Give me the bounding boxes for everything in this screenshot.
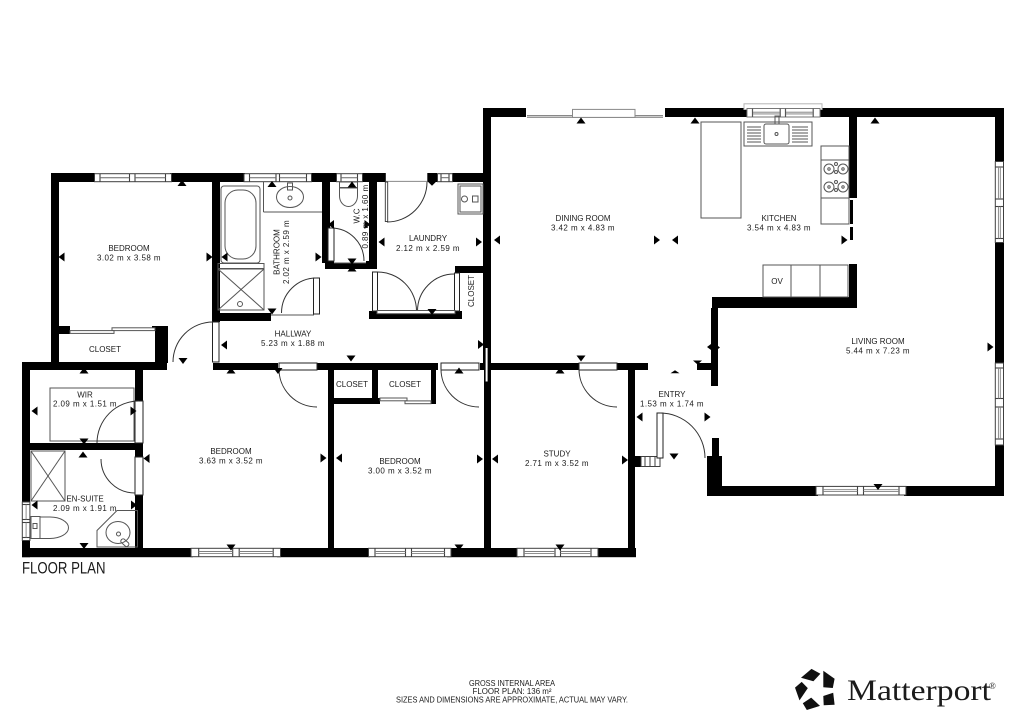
svg-text:LIVING ROOM: LIVING ROOM [851,337,905,346]
svg-text:2.71 m x 3.52 m: 2.71 m x 3.52 m [525,459,589,468]
svg-text:SIZES AND DIMENSIONS ARE APPRO: SIZES AND DIMENSIONS ARE APPROXIMATE, AC… [396,696,628,705]
svg-text:Matterport: Matterport [847,674,992,707]
svg-text:WIR: WIR [77,391,93,400]
svg-text:2.09 m x 1.51 m: 2.09 m x 1.51 m [53,400,117,409]
svg-text:EN-SUITE: EN-SUITE [66,495,103,504]
svg-text:BEDROOM: BEDROOM [108,244,150,253]
svg-text:HALLWAY: HALLWAY [275,330,312,339]
svg-text:ENTRY: ENTRY [659,390,687,399]
svg-text:BEDROOM: BEDROOM [210,447,252,456]
svg-text:2.12 m x 2.59 m: 2.12 m x 2.59 m [396,244,460,253]
svg-text:®: ® [989,681,996,691]
svg-text:CLOSET: CLOSET [336,380,368,389]
svg-text:3.42 m x 4.83 m: 3.42 m x 4.83 m [551,224,615,233]
svg-text:3.02 m x 3.58 m: 3.02 m x 3.58 m [97,254,161,263]
svg-text:LAUNDRY: LAUNDRY [409,234,448,243]
svg-text:OV: OV [771,277,783,286]
svg-text:CLOSET: CLOSET [467,275,476,307]
svg-text:BATHROOM: BATHROOM [273,229,282,275]
svg-text:3.63 m x 3.52 m: 3.63 m x 3.52 m [199,457,263,466]
svg-text:CLOSET: CLOSET [89,345,121,354]
svg-text:5.23 m x 1.88 m: 5.23 m x 1.88 m [261,339,325,348]
svg-text:3.54 m x 4.83 m: 3.54 m x 4.83 m [747,224,811,233]
svg-text:3.00 m x 3.52 m: 3.00 m x 3.52 m [368,467,432,476]
svg-text:1.53 m x 1.74 m: 1.53 m x 1.74 m [640,400,704,409]
svg-text:KITCHEN: KITCHEN [761,214,796,223]
svg-text:2.09 m x 1.91 m: 2.09 m x 1.91 m [53,504,117,513]
svg-text:DINING ROOM: DINING ROOM [555,214,610,223]
svg-text:0.89 m x 1.60 m: 0.89 m x 1.60 m [361,184,370,248]
svg-text:CLOSET: CLOSET [389,380,421,389]
svg-text:BEDROOM: BEDROOM [379,457,421,466]
svg-text:5.44 m x 7.23 m: 5.44 m x 7.23 m [846,347,910,356]
svg-text:2.02 m x 2.59 m: 2.02 m x 2.59 m [282,220,291,284]
svg-text:STUDY: STUDY [543,450,571,459]
svg-text:FLOOR PLAN: FLOOR PLAN [22,559,106,578]
